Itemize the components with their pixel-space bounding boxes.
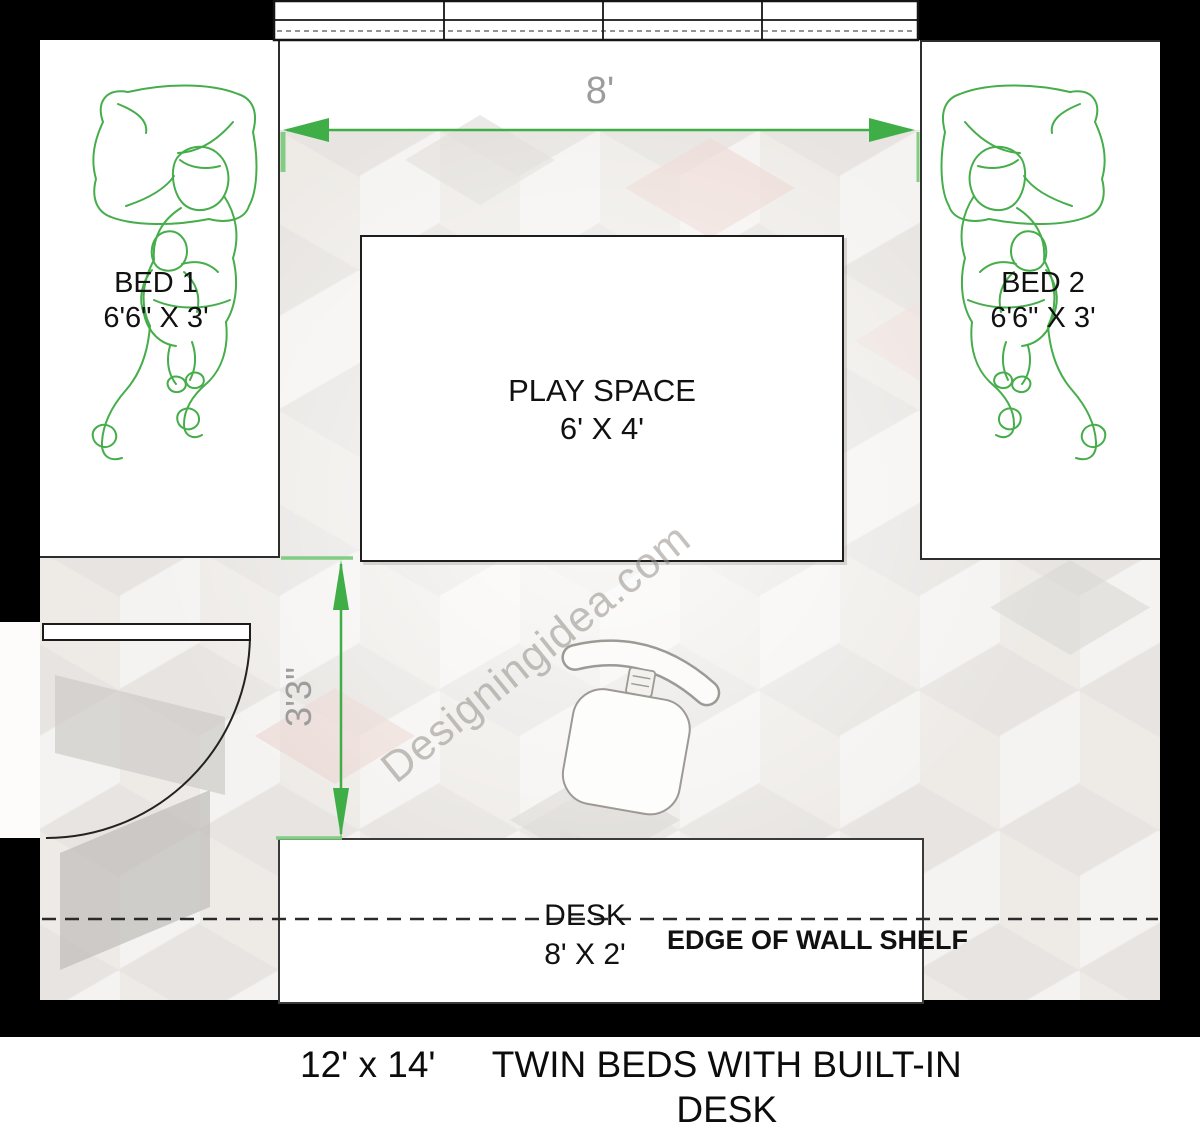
desk-label: DESK 8' X 2' <box>544 896 626 974</box>
bed-1-label: BED 1 6'6" X 3' <box>103 266 208 336</box>
desk-size: 8' X 2' <box>544 935 626 974</box>
bed-1-size: 6'6" X 3' <box>103 301 208 336</box>
wall-frame: Designingidea.com <box>0 0 1200 1037</box>
play-space-label: PLAY SPACE 6' X 4' <box>508 372 696 448</box>
window <box>274 1 918 40</box>
desk-name: DESK <box>544 896 626 935</box>
dimension-8ft-label: 8' <box>586 70 614 113</box>
caption-title: TWIN BEDS WITH BUILT-IN DESK <box>464 1042 991 1132</box>
bed-2-size: 6'6" X 3' <box>990 301 1095 336</box>
play-space-name: PLAY SPACE <box>508 372 696 410</box>
caption-room-size: 12' x 14' <box>300 1042 436 1132</box>
bed-2-label: BED 2 6'6" X 3' <box>990 266 1095 336</box>
door-opening <box>0 622 40 838</box>
floor-plan-canvas: Designingidea.com <box>0 0 1200 1132</box>
play-space-size: 6' X 4' <box>508 410 696 448</box>
caption: 12' x 14' TWIN BEDS WITH BUILT-IN DESK <box>300 1042 990 1132</box>
bed-2-name: BED 2 <box>990 266 1095 301</box>
bed-1-name: BED 1 <box>103 266 208 301</box>
shelf-edge-note: EDGE OF WALL SHELF <box>667 925 968 956</box>
dimension-3ft3-label: 3'3" <box>278 667 320 727</box>
